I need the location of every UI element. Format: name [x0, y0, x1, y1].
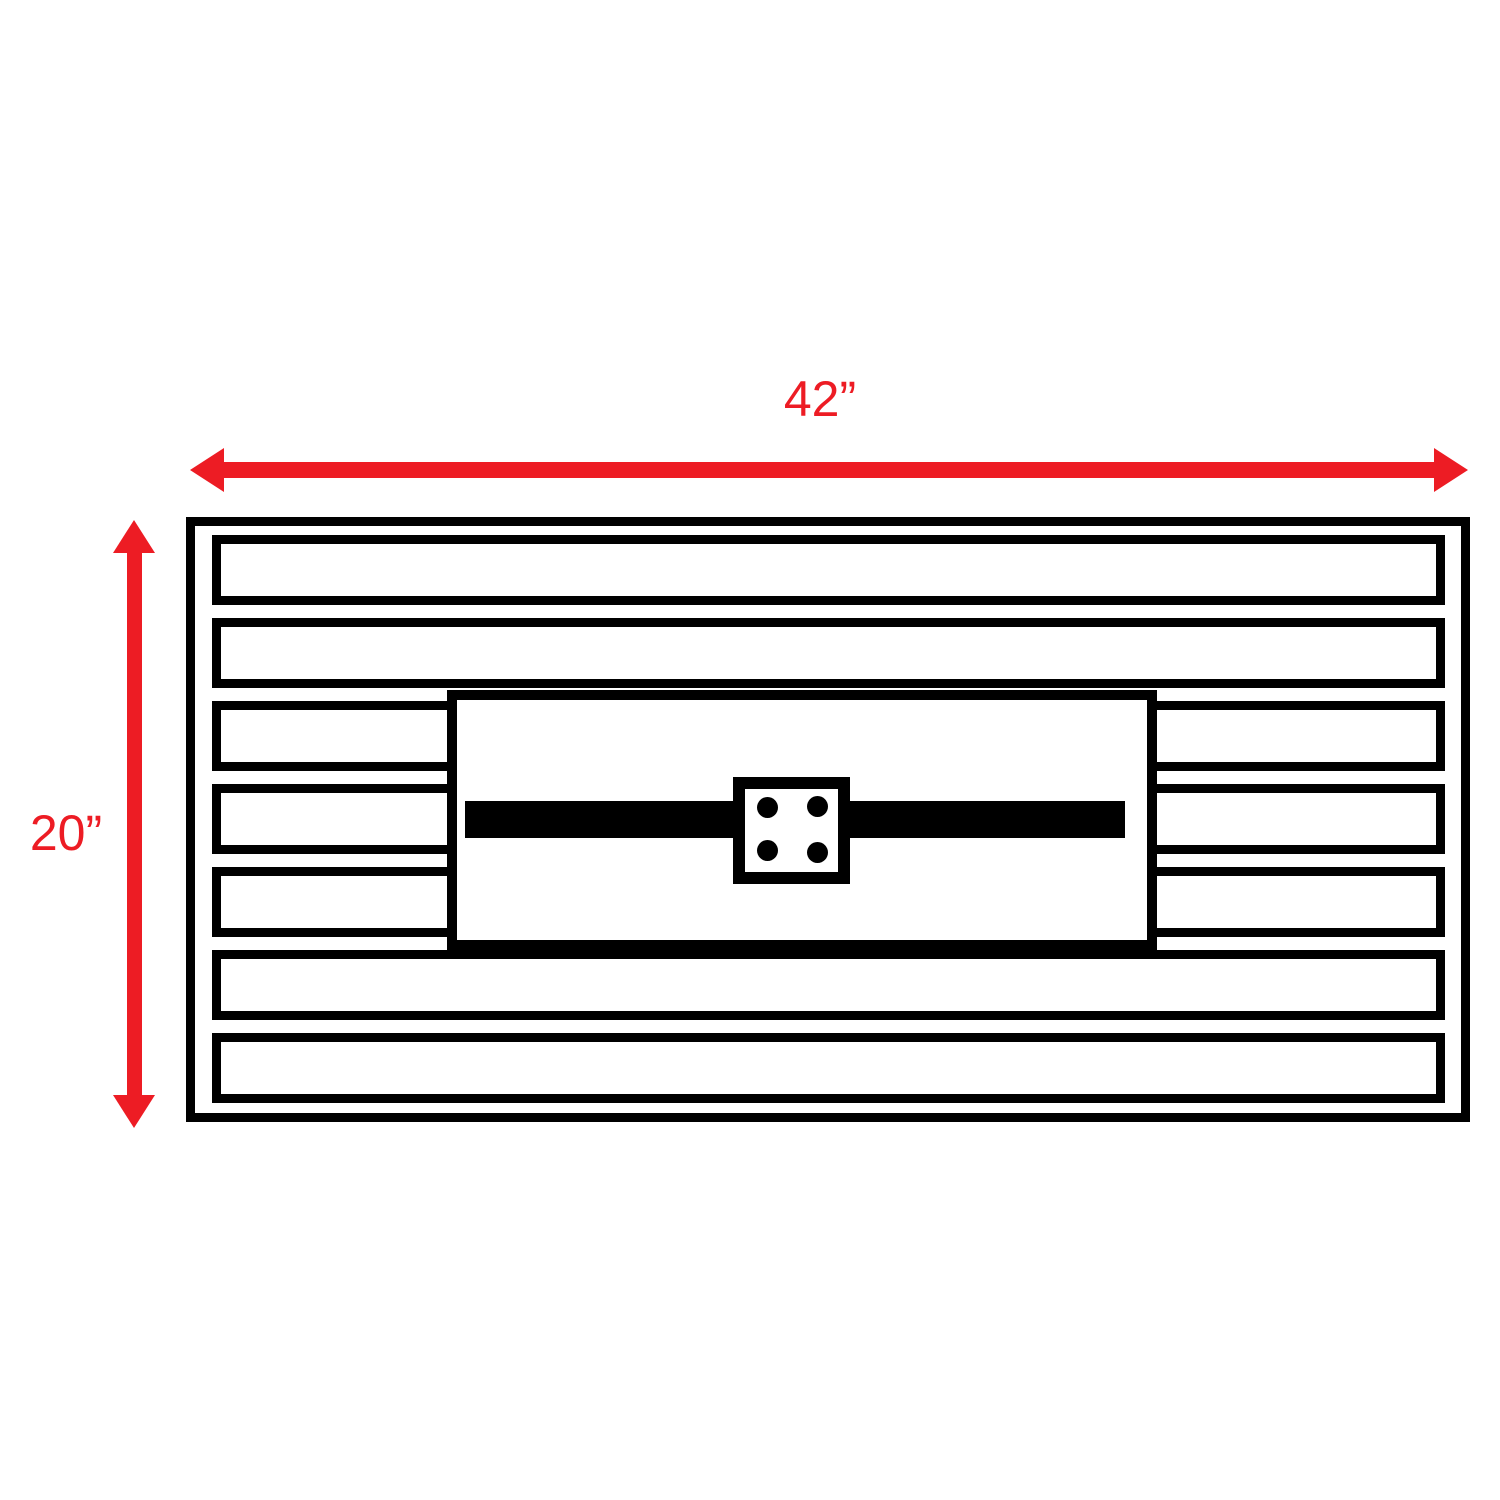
plate-dot-icon [807, 796, 828, 817]
slat-1 [212, 535, 1445, 605]
slat-6 [212, 950, 1445, 1020]
burner-plate [733, 777, 850, 884]
dimension-diagram: 42” 20” [0, 0, 1500, 1500]
plate-dot-icon [757, 840, 778, 861]
slat-7 [212, 1033, 1445, 1103]
slat-2 [212, 618, 1445, 688]
plate-dot-icon [757, 797, 778, 818]
plate-dot-icon [807, 842, 828, 863]
